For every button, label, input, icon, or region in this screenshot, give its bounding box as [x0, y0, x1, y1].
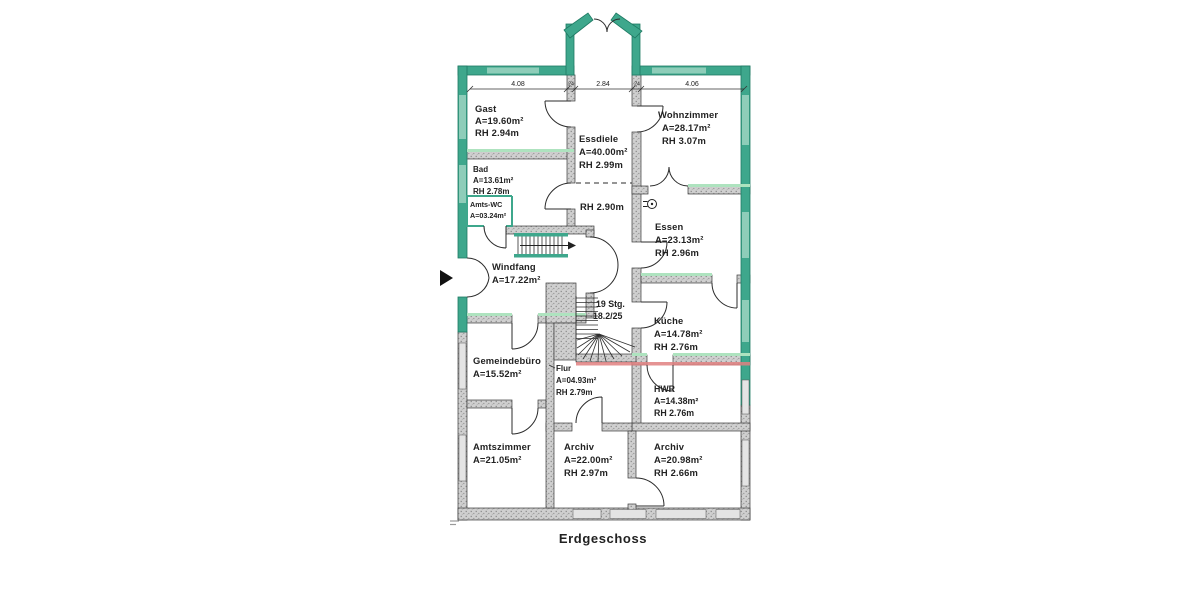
windfang-hall-double-door [590, 237, 618, 293]
wall-highlight-red [576, 362, 750, 366]
dimension-seg1: 4.08 [511, 81, 525, 88]
room-label-essdiele: Essdiele A=40.00m² RH 2.99m [579, 133, 630, 170]
essen-fixture-icon [643, 200, 657, 209]
flur-archiv-door [576, 397, 602, 423]
room-label-archiv-1: Archiv A=22.00m² RH 2.97m [564, 441, 615, 478]
room-label-kueche: Küche A=14.78m² RH 2.76m [654, 315, 705, 352]
room-label-bad: Bad A=13.61m² RH 2.78m [473, 165, 515, 196]
stair-direction-arrow-icon [568, 242, 576, 250]
room-label-amtszimmer: Amtszimmer A=21.05m² [473, 441, 534, 465]
room-label-archiv-2: Archiv A=20.98m² RH 2.66m [654, 441, 705, 478]
scan-artifacts [450, 521, 459, 525]
gast-door [545, 101, 571, 127]
room-label-hwr: HWR A=14.38m² RH 2.76m [654, 384, 701, 418]
room-label-gast: Gast A=19.60m² RH 2.94m [475, 103, 526, 138]
floorplan-title: Erdgeschoss [559, 531, 647, 546]
amtszimmer-door [512, 408, 538, 434]
stairs-label: 19 Stg. 18.2/25 [593, 299, 627, 321]
small-staircase [514, 233, 576, 258]
gemeindebuero-door [512, 323, 538, 349]
room-label-essen: Essen A=23.13m² RH 2.96m [655, 221, 706, 258]
kueche-essen-door [712, 283, 737, 308]
room-label-gemeindebuero: Gemeindebüro A=15.52m² [473, 355, 544, 379]
room-label-windfang: Windfang A=17.22m² [492, 261, 541, 285]
room-label-flur: Flur A=04.93m² RH 2.79m [556, 364, 598, 397]
amts-wc-door [484, 226, 506, 248]
hall-height-note: RH 2.90m [580, 201, 624, 212]
wohnzimmer-essen-double-door [650, 167, 688, 186]
dimension-wall2: 24 [634, 82, 640, 88]
floorplan-drawing: 4.08 24 2.84 24 4.06 Gast A=19.60m² RH 2… [0, 0, 1200, 600]
entrance-arrow-icon [440, 270, 453, 286]
windfang-entrance-double-door [467, 258, 489, 297]
dimension-wall1: 24 [568, 82, 574, 88]
dimension-seg3: 4.06 [685, 81, 699, 88]
bad-door [545, 183, 571, 209]
archiv-right-door [636, 478, 664, 506]
scanned-floorplan-page: 4.08 24 2.84 24 4.06 Gast A=19.60m² RH 2… [0, 0, 1200, 600]
dimension-seg2: 2.84 [596, 81, 610, 88]
room-label-wohnzimmer: Wohnzimmer A=28.17m² RH 3.07m [658, 109, 721, 146]
